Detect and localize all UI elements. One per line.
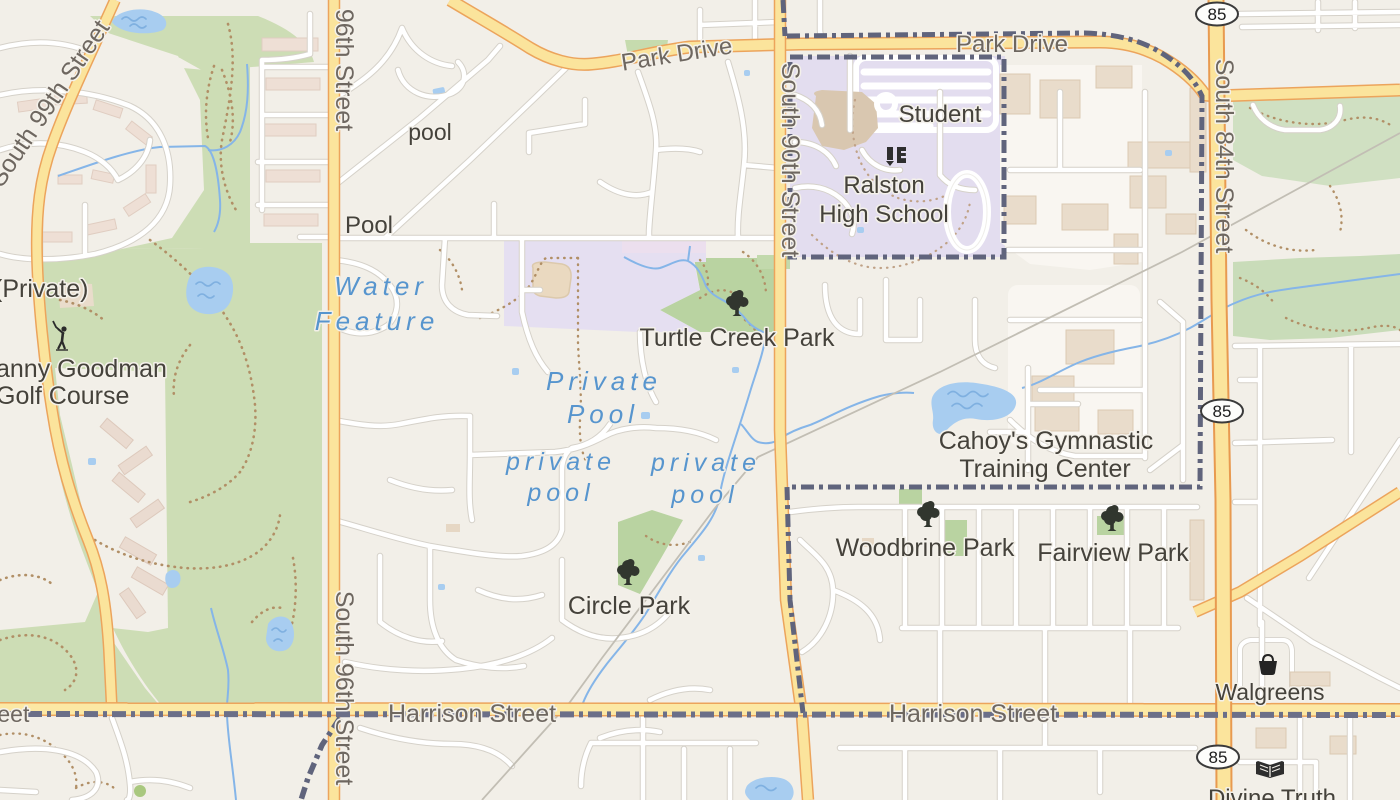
- svg-text:South 90th Street: South 90th Street: [776, 63, 804, 258]
- svg-text:96th Street: 96th Street: [330, 9, 358, 131]
- svg-text:(Private): (Private): [0, 275, 88, 303]
- svg-text:pool: pool: [526, 479, 594, 507]
- svg-text:High School: High School: [819, 201, 948, 228]
- svg-text:Park Drive: Park Drive: [956, 31, 1068, 58]
- svg-text:South 96th Street: South 96th Street: [330, 591, 358, 786]
- svg-text:Woodbrine Park: Woodbrine Park: [836, 534, 1015, 562]
- svg-text:Feature: Feature: [315, 306, 440, 336]
- svg-text:Harrison Street: Harrison Street: [388, 700, 556, 728]
- svg-text:Golf Course: Golf Course: [0, 382, 129, 410]
- svg-text:Street: Street: [0, 701, 30, 727]
- svg-text:private: private: [505, 448, 616, 476]
- svg-text:South 84th Street: South 84th Street: [1210, 59, 1238, 254]
- svg-text:Pool: Pool: [345, 212, 393, 239]
- svg-text:Ralston: Ralston: [843, 172, 924, 199]
- svg-text:Turtle Creek Park: Turtle Creek Park: [640, 324, 835, 352]
- svg-text:Water: Water: [334, 271, 428, 301]
- svg-text:Pool: Pool: [567, 399, 639, 429]
- svg-text:Private: Private: [546, 366, 662, 396]
- svg-text:Harrison Street: Harrison Street: [889, 700, 1057, 728]
- svg-text:Cahoy's Gymnastic: Cahoy's Gymnastic: [939, 427, 1154, 455]
- svg-text:pool: pool: [408, 119, 451, 145]
- svg-text:pool: pool: [670, 481, 738, 509]
- svg-text:anny Goodman: anny Goodman: [0, 355, 167, 383]
- svg-text:Circle Park: Circle Park: [568, 592, 691, 620]
- svg-text:private: private: [650, 449, 761, 477]
- svg-text:85: 85: [1213, 402, 1232, 421]
- svg-text:Divine Truth: Divine Truth: [1208, 785, 1336, 800]
- svg-text:Walgreens: Walgreens: [1215, 679, 1324, 705]
- svg-text:Training Center: Training Center: [959, 455, 1130, 483]
- svg-text:Student: Student: [899, 101, 982, 128]
- svg-text:85: 85: [1209, 748, 1228, 767]
- svg-text:Fairview Park: Fairview Park: [1037, 539, 1189, 567]
- svg-text:85: 85: [1208, 5, 1227, 24]
